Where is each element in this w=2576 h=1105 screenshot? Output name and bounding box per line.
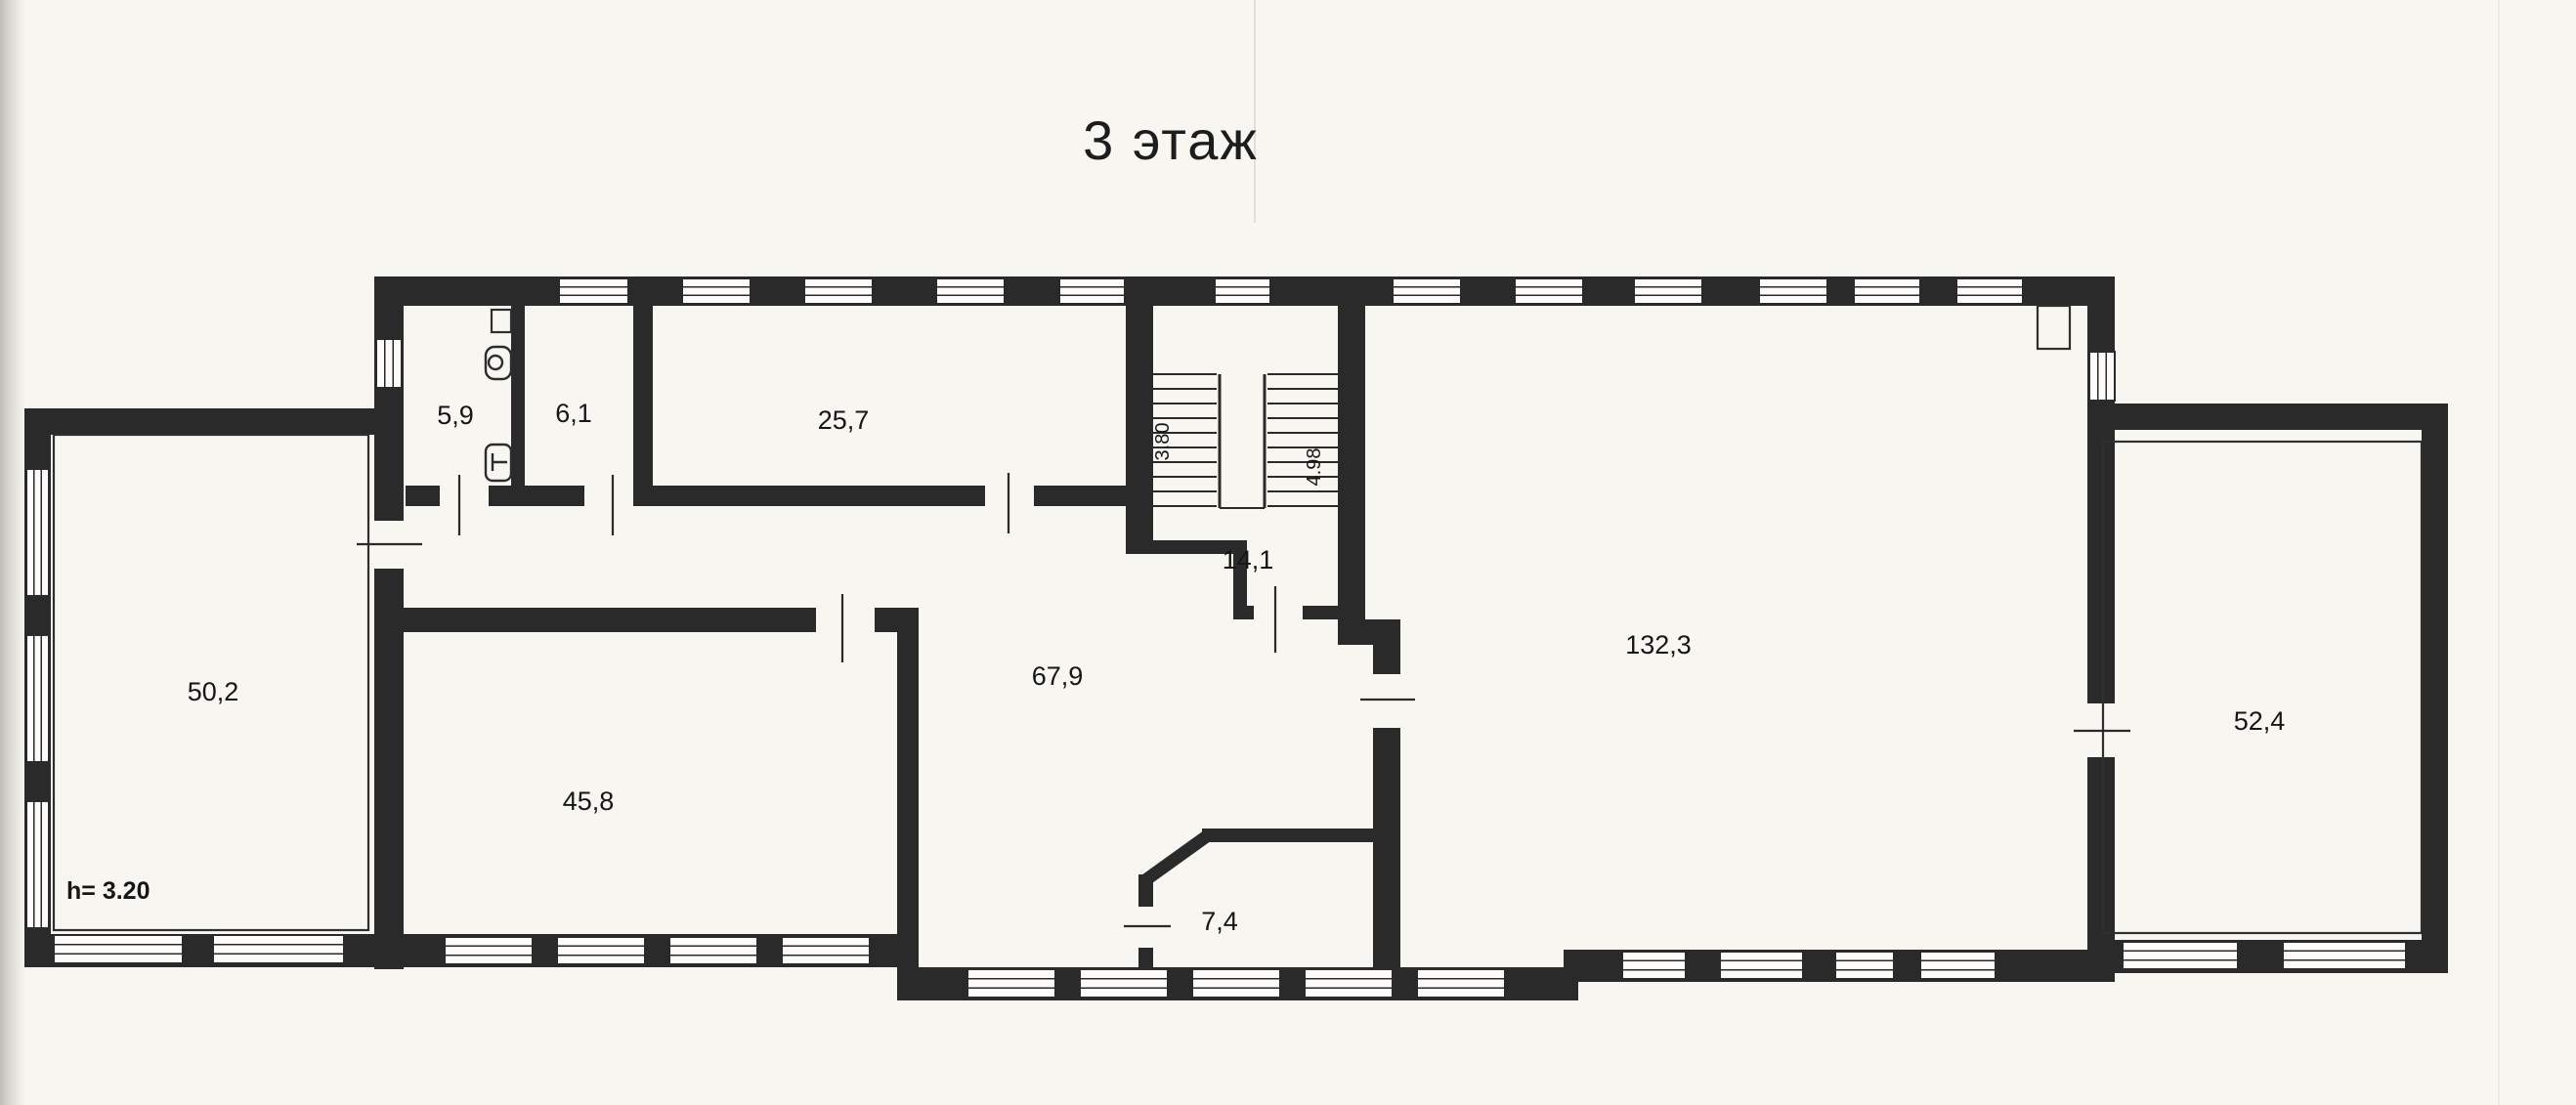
room-label-52-4: 52,4 <box>2234 706 2286 736</box>
scanned-floor-plan-page: 3 этаж 3.80 4.98 <box>0 0 2576 1105</box>
window <box>54 935 183 963</box>
window <box>1720 952 1803 979</box>
window <box>376 339 402 388</box>
window <box>1080 969 1168 998</box>
room-132-3-region <box>1400 306 2087 950</box>
room-label-67-9: 67,9 <box>1032 661 1084 691</box>
window <box>1192 969 1280 998</box>
floor-plan-drawing: 3 этаж 3.80 4.98 <box>0 0 2576 1105</box>
window <box>2123 942 2238 969</box>
window <box>2089 352 2115 401</box>
window <box>936 278 1005 304</box>
window <box>1634 278 1702 304</box>
window <box>26 801 49 928</box>
window <box>967 969 1055 998</box>
window <box>1515 278 1583 304</box>
window <box>1622 952 1686 979</box>
room-label-50-2: 50,2 <box>188 677 239 706</box>
room-label-132-3: 132,3 <box>1625 630 1692 659</box>
window <box>445 937 533 964</box>
window <box>1835 952 1894 979</box>
window <box>26 635 49 762</box>
window <box>782 937 870 964</box>
window <box>1417 969 1505 998</box>
window <box>1854 278 1920 304</box>
window <box>1305 969 1393 998</box>
window <box>804 278 873 304</box>
window <box>26 469 49 596</box>
room-label-wc: 5,9 <box>437 401 474 430</box>
room-label-7-4: 7,4 <box>1201 907 1238 936</box>
room-7-4-region <box>1153 842 1373 967</box>
stairwell-region <box>1153 306 1338 540</box>
room-label-45-8: 45,8 <box>563 786 615 816</box>
window <box>1956 278 2023 304</box>
window <box>682 278 751 304</box>
window <box>1920 952 1996 979</box>
window <box>2283 942 2406 969</box>
room-6-1-region <box>525 306 633 486</box>
room-label-6-1: 6,1 <box>555 399 592 428</box>
room-wc-region <box>404 306 511 486</box>
floor-title: 3 этаж <box>1083 109 1259 171</box>
ceiling-height-note: h= 3.20 <box>66 877 150 905</box>
window <box>1759 278 1827 304</box>
room-25-7-region <box>653 306 1126 486</box>
window <box>1215 278 1270 304</box>
window <box>1059 278 1125 304</box>
window <box>669 937 757 964</box>
room-52-4-region <box>2103 442 2422 933</box>
room-label-25-7: 25,7 <box>818 405 870 435</box>
window <box>1393 278 1461 304</box>
window <box>559 278 628 304</box>
window <box>557 937 645 964</box>
window <box>213 935 344 963</box>
room-label-14-1: 14,1 <box>1223 545 1274 574</box>
room-45-8-region <box>404 632 897 934</box>
